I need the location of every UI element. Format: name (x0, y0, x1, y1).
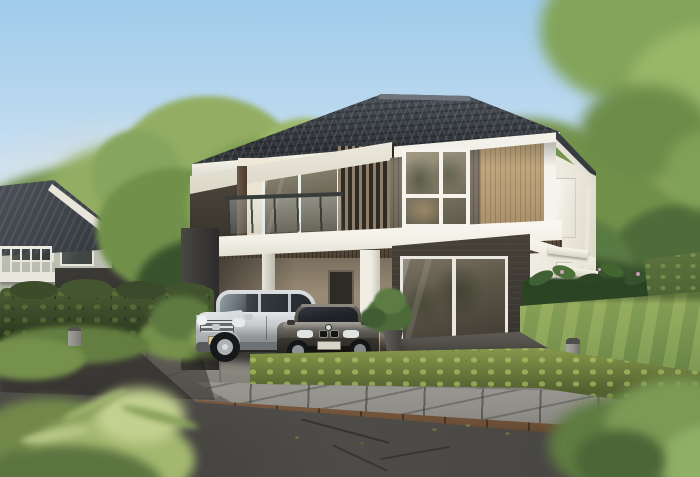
plant-pot (382, 329, 404, 353)
potted-plant (0, 0, 700, 477)
plant-foliage (360, 308, 386, 328)
scene-architectural-render (0, 0, 700, 477)
